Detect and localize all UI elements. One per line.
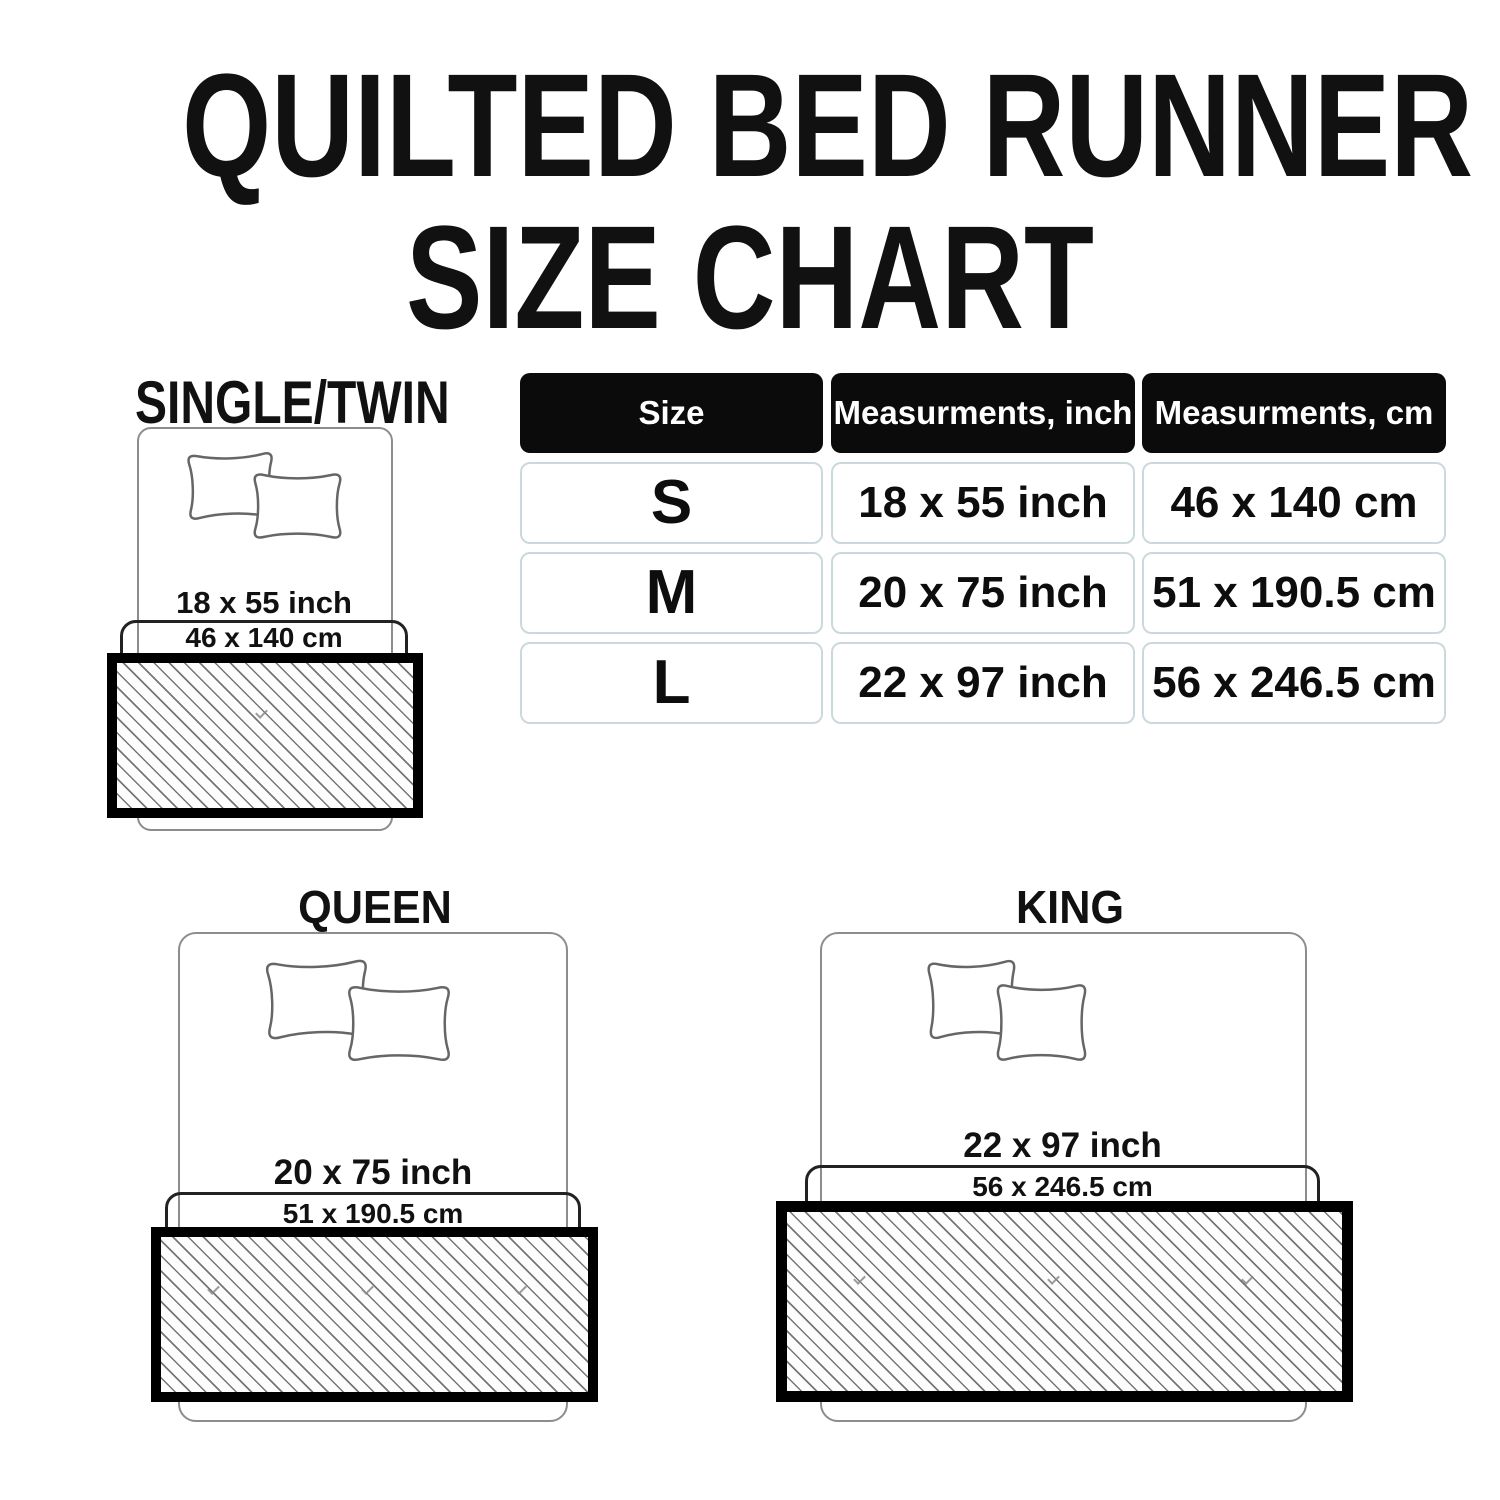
stitch-mark (1047, 1272, 1060, 1285)
bed-runner-swatch (776, 1201, 1353, 1402)
title-line-1-text: QUILTED BED RUNNER (182, 50, 1473, 202)
table-cell-size-m: M (520, 552, 823, 634)
diagram-label-king: KING (929, 880, 1211, 934)
runner-size-cm: 46 x 140 cm (120, 622, 408, 654)
title-line-2: SIZE CHART (0, 202, 1500, 354)
title-line-2-text: SIZE CHART (406, 202, 1094, 354)
runner-size-inch: 18 x 55 inch (120, 585, 408, 621)
pillow-icon (988, 980, 1095, 1065)
table-cell-inch-s: 18 x 55 inch (831, 462, 1135, 544)
stitch-mark (1241, 1272, 1254, 1285)
runner-size-cm: 56 x 246.5 cm (805, 1171, 1320, 1203)
pillow-icon (245, 470, 350, 542)
title-line-1: QUILTED BED RUNNER (0, 50, 1500, 202)
page-title: QUILTED BED RUNNER SIZE CHART (0, 50, 1500, 354)
column-header-inch: Measurments, inch (831, 373, 1135, 453)
table-cell-inch-m: 20 x 75 inch (831, 552, 1135, 634)
table-cell-cm-m: 51 x 190.5 cm (1142, 552, 1446, 634)
column-header-size: Size (520, 373, 823, 453)
stitch-mark (255, 707, 268, 720)
table-cell-inch-l: 22 x 97 inch (831, 642, 1135, 724)
table-cell-cm-s: 46 x 140 cm (1142, 462, 1446, 544)
stitch-mark (853, 1272, 866, 1285)
runner-size-inch: 22 x 97 inch (805, 1126, 1320, 1166)
stitch-mark (361, 1282, 374, 1295)
size-chart-page: QUILTED BED RUNNER SIZE CHART Size Measu… (0, 0, 1500, 1500)
pillow-icon (338, 982, 460, 1065)
runner-size-inch: 20 x 75 inch (165, 1153, 581, 1193)
table-cell-size-s: S (520, 462, 823, 544)
bed-runner-swatch (107, 653, 423, 818)
runner-size-cm: 51 x 190.5 cm (165, 1198, 581, 1230)
bed-runner-swatch (151, 1227, 598, 1402)
table-cell-size-l: L (520, 642, 823, 724)
diagram-label-single-twin: SINGLE/TWIN (135, 368, 391, 437)
stitch-mark (207, 1282, 220, 1295)
table-cell-cm-l: 56 x 246.5 cm (1142, 642, 1446, 724)
stitch-mark (515, 1282, 528, 1295)
diagram-label-queen: QUEEN (234, 880, 516, 934)
column-header-cm: Measurments, cm (1142, 373, 1446, 453)
